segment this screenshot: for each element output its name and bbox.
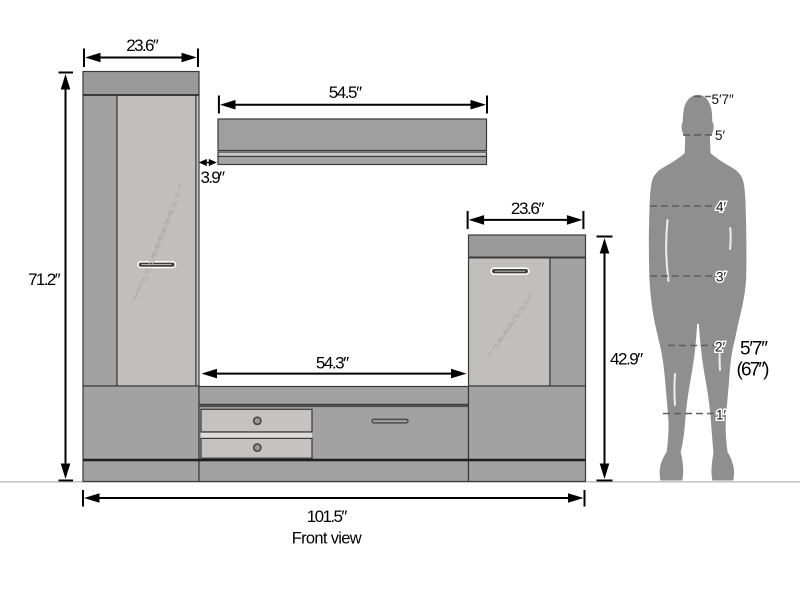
svg-text:101.5″: 101.5″ — [307, 507, 348, 526]
svg-text:3.9″: 3.9″ — [201, 168, 226, 187]
svg-text:Front view: Front view — [292, 530, 362, 548]
svg-text:5′7″: 5′7″ — [712, 92, 735, 107]
svg-text:3′: 3′ — [716, 270, 727, 285]
svg-text:54.5″: 54.5″ — [329, 83, 362, 102]
svg-text:23.6″: 23.6″ — [126, 36, 159, 55]
svg-text:4′: 4′ — [716, 200, 727, 215]
svg-text:54.3″: 54.3″ — [316, 354, 349, 373]
svg-text:(67″): (67″) — [737, 360, 770, 381]
svg-text:5′7″: 5′7″ — [740, 339, 768, 360]
svg-text:2′: 2′ — [715, 339, 726, 354]
svg-text:5′: 5′ — [715, 128, 726, 143]
svg-text:1′: 1′ — [716, 407, 727, 422]
svg-text:23.6″: 23.6″ — [511, 199, 545, 218]
svg-text:71.2″: 71.2″ — [28, 270, 61, 289]
svg-text:42.9″: 42.9″ — [610, 350, 643, 369]
